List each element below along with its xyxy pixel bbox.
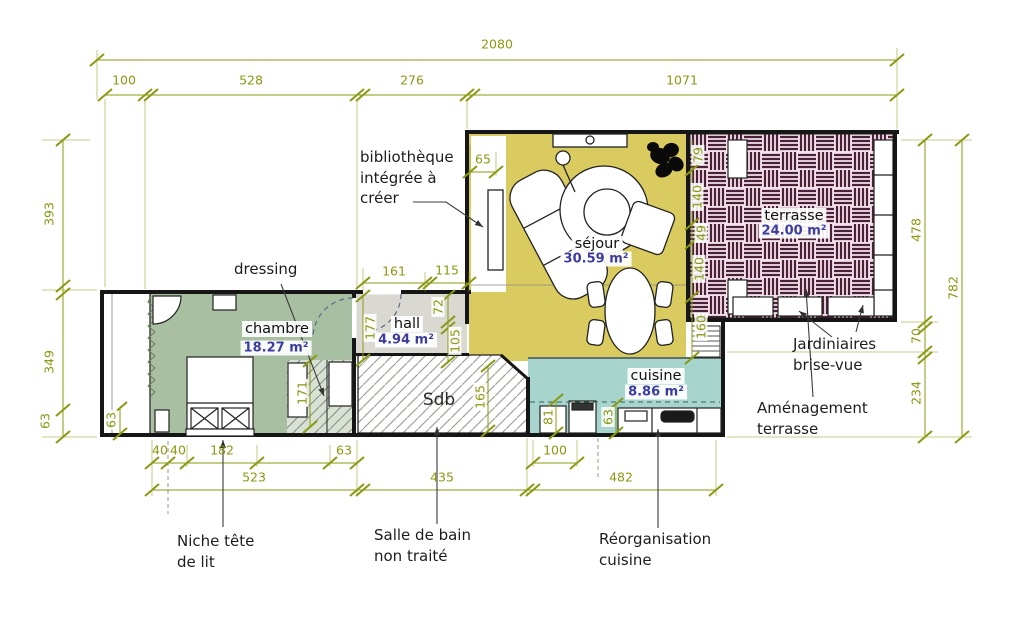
note-niche: Niche tête de lit <box>177 531 254 572</box>
dining-chair <box>586 281 605 308</box>
room-area-chambre: 18.27 m² <box>241 341 312 356</box>
tv-glyph <box>586 136 594 144</box>
dim-top-4: 1071 <box>666 73 698 86</box>
room-label-chambre: chambre <box>242 321 312 337</box>
wardrobe <box>329 362 352 406</box>
dim-dressing-171: 171 <box>295 379 308 407</box>
dim-facade-160: 160 <box>694 313 707 341</box>
dim-top-2: 528 <box>239 73 263 86</box>
pillow <box>222 408 249 429</box>
dim-bottom1-63: 63 <box>336 443 352 456</box>
dim-hall-161: 161 <box>382 264 406 277</box>
note-sdb: Salle de bain non traité <box>374 525 471 566</box>
planter-left <box>733 297 773 316</box>
dim-top-3: 276 <box>400 73 424 86</box>
dim-facade-79: 79 <box>691 145 704 165</box>
oven-glyph <box>572 403 593 410</box>
note-jardinieres: Jardiniaires brise-vue <box>793 334 876 375</box>
room-area-sejour: 30.59 m² <box>561 252 632 267</box>
dining-chair <box>654 281 673 308</box>
pillow <box>191 408 218 429</box>
chambre-door-gap <box>352 298 357 338</box>
dim-sdb-165: 165 <box>473 383 486 411</box>
room-area-terrasse: 24.00 m² <box>759 224 830 239</box>
room-area-cuisine: 8.86 m² <box>625 385 687 400</box>
room-area-hall: 4.94 m² <box>375 333 437 348</box>
room-label-sejour: séjour <box>572 236 623 252</box>
dim-left-1: 393 <box>42 202 55 226</box>
dim-facade-140a: 140 <box>690 183 703 211</box>
wall-shelf <box>213 295 236 310</box>
dim-right-2: 70 <box>909 328 922 344</box>
dim-left-2: 349 <box>42 350 55 374</box>
dim-bottom1-100: 100 <box>543 443 567 456</box>
floorplan-page: 2080 100 528 276 1071 393 349 63 63 478 … <box>0 0 1024 625</box>
dim-right-1: 478 <box>909 218 922 242</box>
floor-lamp <box>556 151 570 165</box>
dim-bottom1-182: 182 <box>210 443 234 456</box>
room-label-hall: hall <box>391 316 423 332</box>
dim-bottom1-40a: 40 <box>152 443 168 456</box>
note-dressing: dressing <box>234 259 297 280</box>
dim-right-total: 782 <box>946 276 959 300</box>
note-bibliotheque: bibliothèque intégrée à créer <box>360 147 454 209</box>
dining-chair <box>586 319 605 346</box>
dim-cuisine-81: 81 <box>541 407 554 427</box>
bibliotheque-shelf <box>488 190 503 270</box>
room-label-cuisine: cuisine <box>628 368 685 384</box>
dim-cuisine-63: 63 <box>601 407 614 427</box>
dim-right-3: 234 <box>909 381 922 405</box>
dim-facade-49: 49 <box>694 223 707 243</box>
bed-niche <box>186 429 254 436</box>
sink <box>625 411 647 421</box>
planter-middle <box>778 297 822 316</box>
dim-top-1: 100 <box>112 73 136 86</box>
room-label-sdb: Sdb <box>423 390 455 410</box>
dim-bottom2-523: 523 <box>242 470 266 483</box>
dim-sejour-65: 65 <box>475 152 491 165</box>
dim-bottom1-40b: 40 <box>170 443 186 456</box>
floorplan-canvas <box>0 0 1024 625</box>
nightstand <box>155 410 169 432</box>
planter-right <box>828 297 874 316</box>
cooktop <box>661 411 694 422</box>
room-label-terrasse: terrasse <box>761 208 826 224</box>
dim-hall-72: 72 <box>431 297 444 317</box>
dining-chair <box>654 319 673 346</box>
dim-hall-115: 115 <box>435 263 459 276</box>
dim-left-63-outer: 63 <box>38 413 51 429</box>
note-amenagement: Aménagement terrasse <box>757 398 868 439</box>
dim-bottom2-482: 482 <box>609 470 633 483</box>
dim-total-width: 2080 <box>481 37 513 50</box>
dim-hall-105: 105 <box>448 327 461 355</box>
dim-left-63-inner: 63 <box>104 410 117 430</box>
dim-bottom2-435: 435 <box>430 470 454 483</box>
dining-table <box>605 268 655 354</box>
dim-facade-140b: 140 <box>692 255 705 283</box>
note-reorganisation: Réorganisation cuisine <box>599 529 711 570</box>
